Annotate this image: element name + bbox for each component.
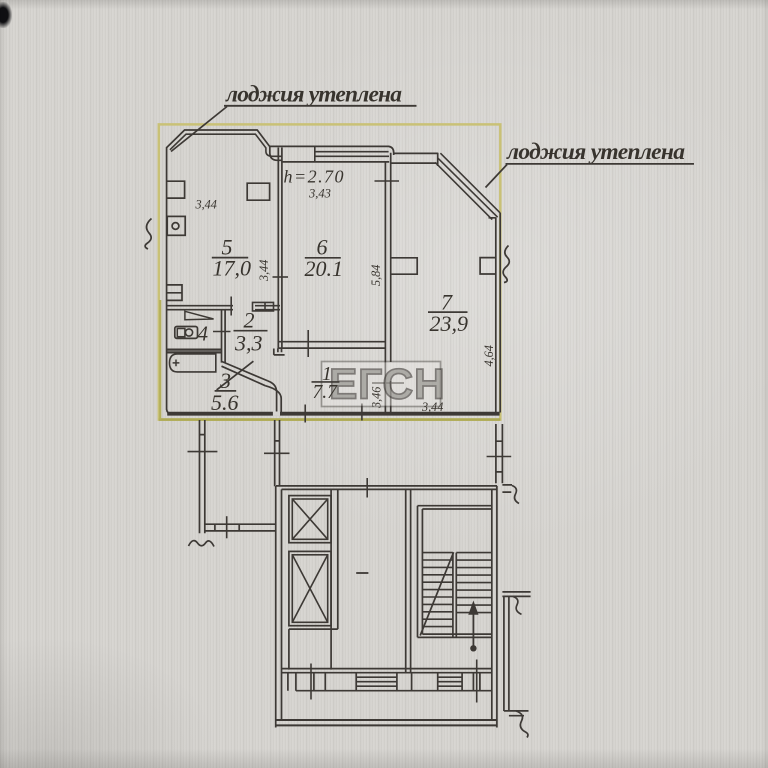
- svg-text:h=2.70: h=2.70: [284, 167, 344, 187]
- svg-text:3,44: 3,44: [195, 198, 217, 212]
- svg-text:20.1: 20.1: [305, 256, 344, 281]
- svg-text:23,9: 23,9: [430, 311, 469, 336]
- svg-text:5,84: 5,84: [369, 265, 383, 286]
- svg-text:2: 2: [244, 308, 255, 333]
- svg-text:3,44: 3,44: [257, 260, 271, 282]
- svg-text:лоджия утеплена: лоджия утеплена: [506, 139, 685, 165]
- svg-text:3,46: 3,46: [370, 386, 384, 409]
- svg-text:4,64: 4,64: [482, 345, 496, 366]
- svg-text:3,43: 3,43: [308, 187, 331, 201]
- svg-text:лоджия утеплена: лоджия утеплена: [225, 82, 402, 108]
- svg-text:7.7: 7.7: [313, 382, 339, 403]
- svg-text:3,44: 3,44: [421, 400, 443, 414]
- svg-text:4: 4: [198, 322, 209, 346]
- svg-text:5.6: 5.6: [211, 390, 239, 415]
- svg-text:3,3: 3,3: [234, 331, 263, 356]
- svg-text:17,0: 17,0: [213, 256, 252, 281]
